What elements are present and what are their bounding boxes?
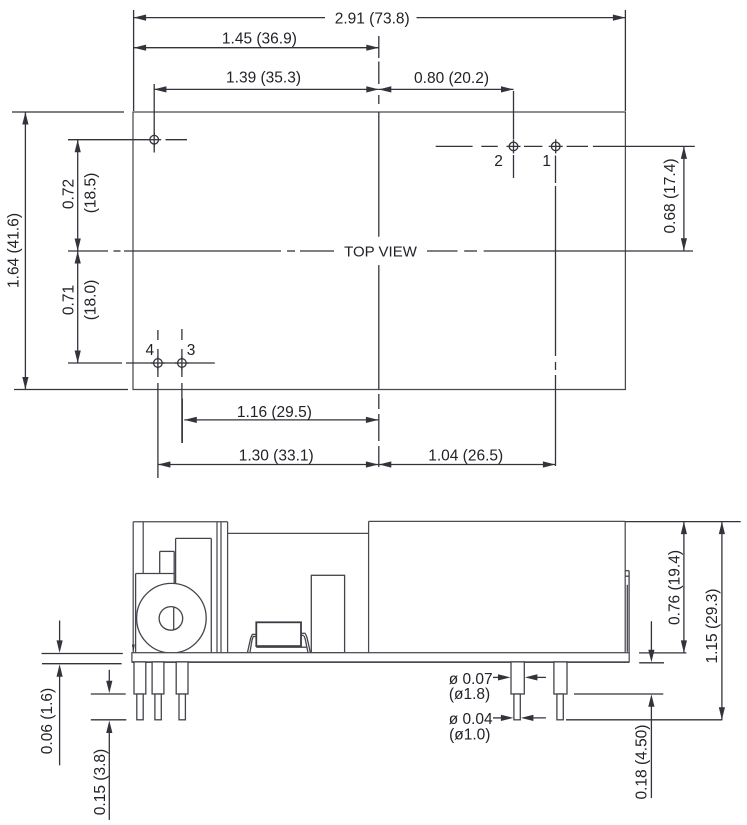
svg-text:1.64 (41.6): 1.64 (41.6) [6, 213, 23, 288]
svg-text:0.15 (3.8): 0.15 (3.8) [92, 749, 109, 815]
svg-text:0.80 (20.2): 0.80 (20.2) [414, 70, 489, 87]
svg-text:0.68 (17.4): 0.68 (17.4) [662, 159, 679, 234]
svg-text:0.18 (4.50): 0.18 (4.50) [634, 725, 651, 800]
svg-text:4: 4 [145, 342, 154, 359]
svg-text:(ø1.8): (ø1.8) [449, 686, 490, 703]
svg-text:(18.0): (18.0) [82, 280, 99, 321]
svg-text:0.71: 0.71 [61, 285, 78, 315]
svg-text:0.72: 0.72 [61, 179, 78, 209]
svg-text:0.76 (19.4): 0.76 (19.4) [667, 550, 684, 625]
svg-text:(18.5): (18.5) [82, 173, 99, 214]
svg-text:2.91 (73.8): 2.91 (73.8) [335, 10, 410, 27]
svg-text:1.45 (36.9): 1.45 (36.9) [222, 30, 297, 47]
svg-text:2: 2 [494, 153, 503, 170]
svg-text:(ø1.0): (ø1.0) [449, 726, 490, 743]
svg-text:3: 3 [187, 342, 196, 359]
svg-text:0.06 (1.6): 0.06 (1.6) [39, 688, 56, 754]
svg-text:1.39 (35.3): 1.39 (35.3) [226, 69, 301, 86]
svg-text:TOP VIEW: TOP VIEW [344, 244, 418, 261]
svg-text:1: 1 [542, 153, 551, 170]
svg-text:1.30 (33.1): 1.30 (33.1) [239, 447, 314, 464]
svg-text:1.15 (29.3): 1.15 (29.3) [704, 589, 721, 664]
svg-text:1.04 (26.5): 1.04 (26.5) [428, 447, 503, 464]
svg-text:1.16 (29.5): 1.16 (29.5) [237, 404, 312, 421]
